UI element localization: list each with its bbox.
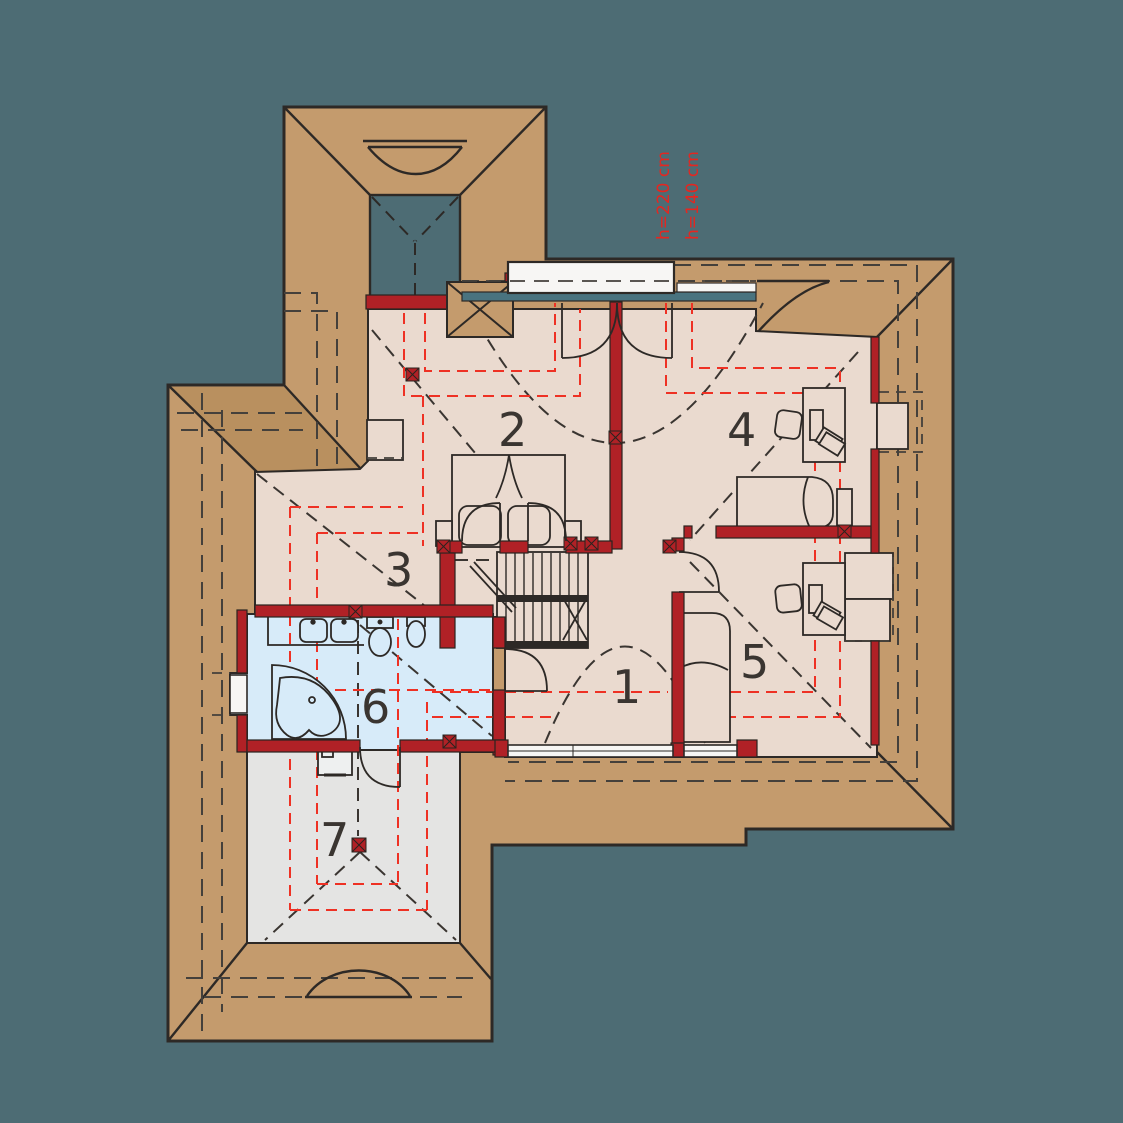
wall-room1-room5 <box>672 592 684 755</box>
bay-east-3 <box>845 599 890 641</box>
room-label-1: 1 <box>612 660 641 714</box>
bay-east-2 <box>845 553 893 599</box>
height-label-140: h=140 cm <box>683 151 703 240</box>
room-label-5: 5 <box>740 635 769 689</box>
bed-room5 <box>680 613 730 742</box>
floor-plan-drawing: 1 2 3 4 5 6 7 h=220 cm h=140 cm <box>0 0 1123 1123</box>
chair-room5 <box>775 584 803 613</box>
window-west-bathroom <box>230 675 247 713</box>
height-label-220: h=220 cm <box>654 151 674 240</box>
bed-room2 <box>436 455 581 547</box>
wall-bathroom-north <box>255 605 493 617</box>
nightstand <box>837 489 852 527</box>
room-label-3: 3 <box>384 543 413 597</box>
bay-east-1 <box>877 403 908 449</box>
wall-room4-room5 <box>716 526 877 538</box>
room-label-4: 4 <box>727 403 756 457</box>
chimney-block <box>447 282 513 337</box>
floor-plan-page: 1 2 3 4 5 6 7 h=220 cm h=140 cm <box>0 0 1123 1123</box>
chair-room4 <box>774 409 803 439</box>
room-label-6: 6 <box>361 680 390 734</box>
wall-storage-north <box>247 740 360 752</box>
room-label-7: 7 <box>320 813 349 867</box>
window-north-large <box>508 262 674 293</box>
bidet <box>407 617 425 647</box>
bay-west <box>367 420 403 460</box>
room-label-2: 2 <box>498 403 527 457</box>
wall-stairs-west <box>440 553 455 648</box>
toilet <box>367 617 393 656</box>
wall-east <box>871 337 879 403</box>
wall-room2-room4 <box>610 302 622 549</box>
